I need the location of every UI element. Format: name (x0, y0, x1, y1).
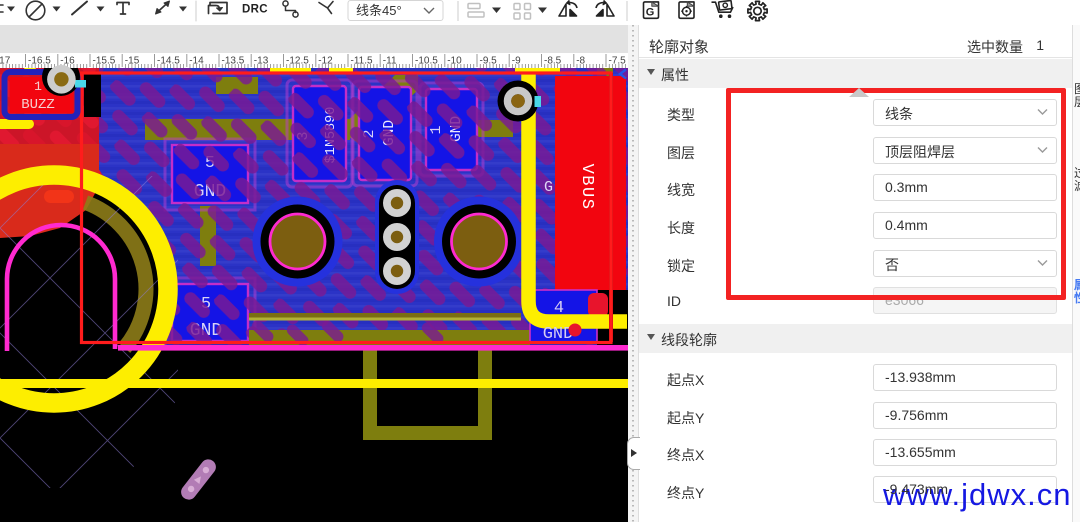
svg-text:-8.5: -8.5 (544, 56, 562, 67)
svg-text:1: 1 (34, 79, 42, 94)
svg-text:-11.5: -11.5 (351, 56, 373, 67)
svg-text:VBUS: VBUS (577, 164, 596, 211)
svg-text:DRC: DRC (242, 4, 268, 16)
svg-text:-9.5: -9.5 (480, 56, 498, 67)
svg-text:G: G (646, 7, 655, 19)
svg-text:G: G (544, 179, 553, 196)
svg-text:-8: -8 (576, 56, 585, 67)
svg-text:BUZZ: BUZZ (21, 97, 55, 113)
svg-text:-9: -9 (512, 56, 521, 67)
svg-text:线条45°: 线条45° (356, 3, 402, 18)
svg-text:-7.5: -7.5 (609, 56, 627, 67)
